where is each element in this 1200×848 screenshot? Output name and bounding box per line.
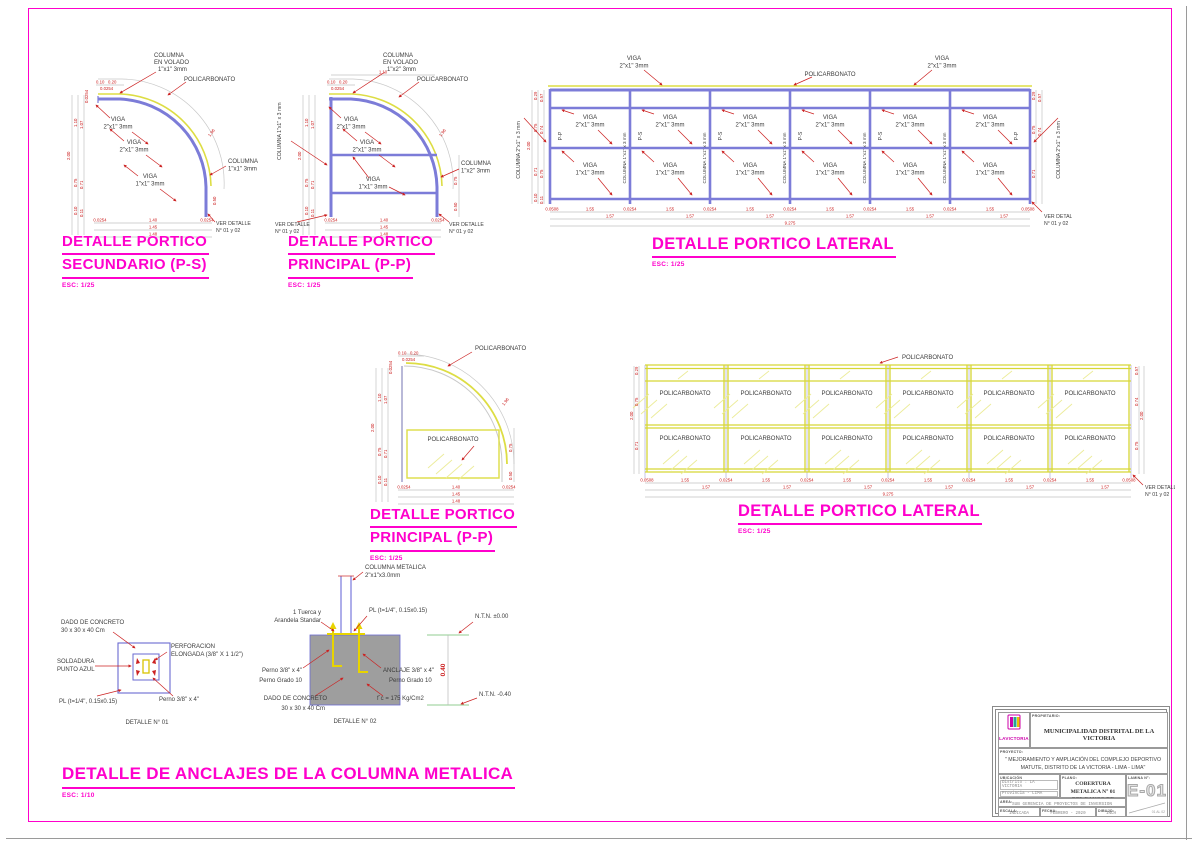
svg-text:2"x1" 3mm: 2"x1" 3mm: [104, 125, 133, 131]
svg-text:1"x2" 3mm: 1"x2" 3mm: [387, 67, 416, 73]
svg-text:VIGA: VIGA: [143, 174, 157, 180]
structure: [548, 86, 1032, 204]
svg-text:0.29: 0.29: [533, 91, 538, 100]
svg-text:DETALLE N° 02: DETALLE N° 02: [334, 719, 378, 725]
svg-text:0.71: 0.71: [310, 180, 315, 189]
svg-text:VIGA: VIGA: [743, 115, 757, 121]
svg-text:1.55: 1.55: [986, 207, 995, 212]
svg-text:P-S: P-S: [798, 131, 804, 140]
svg-text:1.45: 1.45: [380, 225, 389, 230]
svg-text:2.00: 2.00: [526, 141, 531, 150]
svg-text:POLICARBONATO: POLICARBONATO: [821, 391, 872, 397]
plano-cell: PLANO: COBERTURA METALICA N° 01 DEL BANC…: [1060, 774, 1126, 798]
structure: [329, 94, 442, 217]
plano-label: PLANO:: [1062, 776, 1077, 780]
svg-text:1.57: 1.57: [846, 214, 855, 219]
svg-text:1.57: 1.57: [783, 485, 792, 490]
proyecto-line1: " MEJORAMIENTO Y AMPLIACIÓN DEL COMPLEJO…: [999, 757, 1167, 765]
svg-text:1.55: 1.55: [666, 207, 675, 212]
svg-text:1"x2" 3mm: 1"x2" 3mm: [461, 169, 490, 175]
svg-text:0.20: 0.20: [410, 351, 419, 356]
svg-text:2"x1"x3.0mm: 2"x1"x3.0mm: [365, 573, 400, 579]
svg-text:POLICARBONATO: POLICARBONATO: [659, 391, 710, 397]
svg-text:0.10: 0.10: [377, 475, 382, 484]
svg-text:N° 01 y 02: N° 01 y 02: [449, 229, 473, 235]
detail-labels: VIGA 2"x1" 3mm VIGA 2"x1" 3mm POLICARBON…: [516, 56, 1072, 227]
svg-text:POLICARBONATO: POLICARBONATO: [821, 436, 872, 442]
svg-text:EN VOLADO: EN VOLADO: [383, 60, 418, 66]
propietario-cell: PROPIETARIO: MUNICIPALIDAD DISTRITAL DE …: [1030, 712, 1168, 748]
propietario-value: MUNICIPALIDAD DISTRITAL DE LA VICTORIA: [1031, 728, 1167, 742]
escala-label: ESCALA:: [1000, 809, 1017, 813]
proyecto-label: PROYECTO:: [1000, 750, 1023, 754]
svg-text:0.10: 0.10: [73, 206, 78, 215]
svg-text:Perno Grado 10: Perno Grado 10: [259, 678, 302, 684]
logo-cell: LAVICTORIA: [998, 712, 1030, 748]
ubicacion-label: UBICACIÓN: [1000, 776, 1022, 780]
svg-text:0.0254: 0.0254: [331, 86, 345, 91]
svg-text:2.00: 2.00: [1139, 411, 1144, 420]
leader-arrows: [448, 352, 474, 460]
svg-text:0.75: 0.75: [533, 123, 538, 132]
svg-text:1.55: 1.55: [681, 478, 690, 483]
svg-text:0.0254: 0.0254: [943, 207, 957, 212]
structure: [98, 94, 211, 217]
svg-text:0.75: 0.75: [539, 169, 544, 178]
svg-text:1.40: 1.40: [452, 485, 461, 490]
svg-text:VIGA: VIGA: [344, 117, 358, 123]
svg-text:VIGA: VIGA: [663, 115, 677, 121]
svg-text:1"x1" 3mm: 1"x1" 3mm: [228, 167, 257, 173]
svg-text:VIGA: VIGA: [663, 163, 677, 169]
svg-text:2.00: 2.00: [297, 151, 302, 160]
svg-text:1.55: 1.55: [762, 478, 771, 483]
dibujo-cell: DIBUJO: INCH: [1096, 807, 1126, 817]
lamina-number: E-01: [1127, 781, 1167, 801]
svg-text:0.50: 0.50: [453, 202, 458, 211]
drawing-portico-principal-top: COLUMNA EN VOLADO 1"x2" 3mm POLICARBONAT…: [273, 45, 528, 245]
svg-text:VIGA: VIGA: [366, 177, 380, 183]
svg-text:f´c = 175 Kg/Cm2: f´c = 175 Kg/Cm2: [377, 696, 425, 702]
svg-text:2"x1" 3mm: 2"x1" 3mm: [576, 123, 605, 129]
detail-labels: POLICARBONATO POLICARBONATO POLICARBONAT…: [659, 355, 1175, 498]
svg-text:1.40: 1.40: [149, 218, 158, 223]
svg-text:COLUMNA 2"x1" x 3 mm: COLUMNA 2"x1" x 3 mm: [1056, 121, 1062, 179]
svg-text:VIGA: VIGA: [983, 163, 997, 169]
svg-text:1.57: 1.57: [702, 485, 711, 490]
svg-text:POLICARBONATO: POLICARBONATO: [1064, 436, 1115, 442]
svg-text:VIGA: VIGA: [627, 56, 641, 62]
svg-text:1"x1" 3mm: 1"x1" 3mm: [736, 171, 765, 177]
svg-text:1.57: 1.57: [926, 214, 935, 219]
svg-text:POLICARBONATO: POLICARBONATO: [659, 436, 710, 442]
svg-text:EN VOLADO: EN VOLADO: [154, 60, 189, 66]
title-portico-principal-mid: DETALLE PORTICO PRINCIPAL (P-P) ESC: 1/2…: [370, 505, 517, 563]
svg-text:COLUMNA 1"x1" x 3 mm: COLUMNA 1"x1" x 3 mm: [702, 132, 707, 183]
svg-text:N° 01 y 02: N° 01 y 02: [1145, 492, 1169, 498]
svg-text:1"x1" 3mm: 1"x1" 3mm: [656, 171, 685, 177]
svg-text:N° 01 y 02: N° 01 y 02: [216, 228, 240, 234]
svg-text:VER DETALLE: VER DETALLE: [1145, 485, 1175, 491]
proyecto-line2: MATUTE, DISTRITO DE LA VICTORIA - LIMA -…: [999, 765, 1167, 773]
svg-text:0.50: 0.50: [508, 471, 513, 480]
svg-text:1"x1" 3mm: 1"x1" 3mm: [976, 171, 1005, 177]
svg-text:VIGA: VIGA: [127, 140, 141, 146]
svg-text:1"x1" 3mm: 1"x1" 3mm: [136, 182, 165, 188]
paper-edge-bottom: [6, 838, 1192, 839]
svg-text:1"x1" 3mm: 1"x1" 3mm: [816, 171, 845, 177]
svg-text:1.07: 1.07: [79, 120, 84, 129]
svg-text:N.T.N. ±0.00: N.T.N. ±0.00: [475, 614, 509, 620]
fecha-label: FECHA:: [1042, 809, 1057, 813]
svg-text:9.275: 9.275: [785, 221, 796, 226]
title-portico-principal-top: DETALLE PORTICO PRINCIPAL (P-P) ESC: 1/2…: [288, 232, 435, 290]
svg-text:0.57: 0.57: [1037, 93, 1042, 102]
svg-text:COLUMNA 1"x1" x 3 mm: COLUMNA 1"x1" x 3 mm: [277, 102, 283, 160]
svg-text:VIGA: VIGA: [743, 163, 757, 169]
svg-text:1.96: 1.96: [438, 127, 447, 137]
svg-text:2"x1" 3mm: 2"x1" 3mm: [120, 148, 149, 154]
svg-text:Perno 3/8" x 4": Perno 3/8" x 4": [262, 668, 302, 674]
svg-text:P-P: P-P: [558, 131, 564, 140]
svg-text:0.11: 0.11: [310, 208, 315, 217]
detail-labels: COLUMNA EN VOLADO 1"x1" 3mm POLICARBONAT…: [104, 53, 258, 234]
svg-text:0.0254: 0.0254: [200, 218, 214, 223]
svg-text:0.74: 0.74: [539, 125, 544, 134]
svg-text:0.0254: 0.0254: [324, 218, 338, 223]
svg-text:1 Tuerca y: 1 Tuerca y: [293, 610, 321, 616]
svg-text:2"x1" 3mm: 2"x1" 3mm: [976, 123, 1005, 129]
svg-text:0.10: 0.10: [96, 80, 105, 85]
svg-text:1"x1" 3mm: 1"x1" 3mm: [158, 67, 187, 73]
svg-text:0.75: 0.75: [634, 397, 639, 406]
svg-text:1.57: 1.57: [766, 214, 775, 219]
svg-text:0.0254: 0.0254: [881, 478, 895, 483]
svg-text:2"x1" 3mm: 2"x1" 3mm: [736, 123, 765, 129]
svg-text:0.0254: 0.0254: [93, 218, 107, 223]
svg-text:VER DETALLE: VER DETALLE: [449, 222, 484, 228]
svg-text:0.0254: 0.0254: [800, 478, 814, 483]
ubicacion-distrito: Distrito : LA VICTORIA: [1000, 780, 1058, 790]
plano-line1: COBERTURA METALICA N° 01: [1061, 781, 1125, 797]
svg-text:0.0254: 0.0254: [783, 207, 797, 212]
svg-text:1.57: 1.57: [1101, 485, 1110, 490]
svg-text:POLICARBONATO: POLICARBONATO: [983, 391, 1034, 397]
svg-text:0.29: 0.29: [634, 366, 639, 375]
svg-text:0.75: 0.75: [1134, 441, 1139, 450]
svg-text:0.10: 0.10: [398, 351, 407, 356]
svg-text:1.48: 1.48: [452, 499, 461, 504]
svg-text:2"x1" 3mm: 2"x1" 3mm: [928, 64, 957, 70]
svg-text:0.75: 0.75: [377, 447, 382, 456]
area-cell: AREA: SUB GERENCIA DE PROYECTOS DE INVER…: [998, 798, 1126, 807]
svg-text:DADO DE CONCRETO: DADO DE CONCRETO: [264, 696, 328, 702]
svg-text:0.57: 0.57: [539, 93, 544, 102]
svg-text:0.71: 0.71: [383, 449, 388, 458]
svg-text:VIGA: VIGA: [903, 115, 917, 121]
svg-text:1.45: 1.45: [149, 225, 158, 230]
svg-text:0.11: 0.11: [539, 195, 544, 204]
svg-text:VIGA: VIGA: [823, 115, 837, 121]
svg-text:0.0254: 0.0254: [402, 357, 416, 362]
svg-text:0.0254: 0.0254: [388, 360, 393, 374]
svg-text:0.0508: 0.0508: [640, 478, 654, 483]
paper-edge-right: [1186, 6, 1187, 840]
svg-text:Perno 3/8" x 4": Perno 3/8" x 4": [159, 697, 199, 703]
svg-text:POLICARBONATO: POLICARBONATO: [475, 346, 526, 352]
dimension-lines: [376, 354, 514, 504]
lamina-label: LAMINA N°:: [1128, 776, 1150, 780]
svg-text:PERFORACION: PERFORACION: [171, 644, 215, 650]
svg-text:Arandela Standar: Arandela Standar: [274, 618, 321, 624]
detail-labels: DADO DE CONCRETO 30 x 30 x 40 Cm PERFORA…: [57, 620, 243, 726]
escala-cell: ESCALA: INDICADA: [998, 807, 1040, 817]
svg-text:POLICARBONATO: POLICARBONATO: [804, 72, 855, 78]
svg-text:PL (t=1/4", 0.15x0.15): PL (t=1/4", 0.15x0.15): [59, 699, 117, 705]
svg-text:0.75: 0.75: [1031, 125, 1036, 134]
svg-text:2"x1" 3mm: 2"x1" 3mm: [353, 148, 382, 154]
svg-text:VIGA: VIGA: [935, 56, 949, 62]
svg-text:0.0254: 0.0254: [623, 207, 637, 212]
drawing-portico-secundario: COLUMNA EN VOLADO 1"x1" 3mm POLICARBONAT…: [58, 45, 293, 245]
structure: [402, 363, 507, 482]
svg-text:0.29: 0.29: [1031, 91, 1036, 100]
svg-text:30 x 30 x 40 Cm: 30 x 30 x 40 Cm: [281, 706, 325, 712]
svg-text:P-S: P-S: [638, 131, 644, 140]
svg-text:1.57: 1.57: [864, 485, 873, 490]
svg-text:COLUMNA 1"x1" x 3 mm: COLUMNA 1"x1" x 3 mm: [942, 132, 947, 183]
propietario-label: PROPIETARIO:: [1032, 714, 1060, 718]
svg-text:1.10: 1.10: [377, 393, 382, 402]
title-anclajes: DETALLE DE ANCLAJES DE LA COLUMNA METALI…: [62, 763, 515, 801]
logo-text: LAVICTORIA: [999, 736, 1029, 741]
svg-text:0.57: 0.57: [1134, 366, 1139, 375]
svg-text:2.00: 2.00: [370, 423, 375, 432]
svg-text:0.0254: 0.0254: [703, 207, 717, 212]
scale-note: ESC: 1/25: [652, 261, 896, 270]
svg-text:1.45: 1.45: [452, 492, 461, 497]
svg-text:2"x1" 3mm: 2"x1" 3mm: [896, 123, 925, 129]
svg-text:COLUMNA 2"x1" x 3 mm: COLUMNA 2"x1" x 3 mm: [516, 121, 522, 179]
svg-text:POLICARBONATO: POLICARBONATO: [184, 77, 235, 83]
svg-text:COLUMNA: COLUMNA: [461, 161, 491, 167]
svg-text:VIGA: VIGA: [360, 140, 374, 146]
svg-text:1.57: 1.57: [1000, 214, 1009, 219]
svg-text:VER DETALLE: VER DETALLE: [216, 221, 251, 227]
svg-text:0.11: 0.11: [79, 208, 84, 217]
svg-text:1"x1" 3mm: 1"x1" 3mm: [359, 185, 388, 191]
svg-text:VIGA: VIGA: [583, 115, 597, 121]
svg-text:1.10: 1.10: [304, 118, 309, 127]
svg-text:PUNTO AZUL: PUNTO AZUL: [57, 667, 95, 673]
svg-text:COLUMNA: COLUMNA: [154, 53, 184, 59]
svg-text:0.0254: 0.0254: [431, 218, 445, 223]
svg-text:0.0254: 0.0254: [962, 478, 976, 483]
svg-text:POLICARBONATO: POLICARBONATO: [902, 355, 953, 361]
svg-text:2"x1" 3mm: 2"x1" 3mm: [620, 64, 649, 70]
svg-text:VER DETALLE: VER DETALLE: [1044, 214, 1072, 220]
svg-text:COLUMNA METALICA: COLUMNA METALICA: [365, 565, 426, 571]
ubicacion-cell: UBICACIÓN Distrito : LA VICTORIA Provinc…: [998, 774, 1060, 798]
svg-text:0.0508: 0.0508: [1021, 207, 1035, 212]
svg-text:1.55: 1.55: [1005, 478, 1014, 483]
svg-text:DETALLE N° 01: DETALLE N° 01: [126, 720, 170, 726]
drawing-portico-lateral-mid: POLICARBONATO POLICARBONATO POLICARBONAT…: [630, 350, 1175, 500]
svg-text:0.0254: 0.0254: [397, 485, 411, 490]
svg-text:1.07: 1.07: [383, 395, 388, 404]
svg-text:1.96: 1.96: [501, 396, 510, 406]
svg-text:1.96: 1.96: [207, 127, 216, 137]
svg-text:0.74: 0.74: [1037, 127, 1042, 136]
fecha-cell: FECHA: FEBRERO - 2020: [1040, 807, 1096, 817]
svg-text:0.71: 0.71: [634, 441, 639, 450]
svg-text:Perno Grado 10: Perno Grado 10: [389, 678, 432, 684]
svg-text:POLICARBONATO: POLICARBONATO: [740, 391, 791, 397]
svg-text:ELONGADA (3/8" X 1 1/2"): ELONGADA (3/8" X 1 1/2"): [171, 652, 243, 658]
svg-text:1.10: 1.10: [379, 70, 388, 75]
svg-text:0.74: 0.74: [1134, 397, 1139, 406]
svg-text:1.55: 1.55: [924, 478, 933, 483]
svg-text:2"x1" 3mm: 2"x1" 3mm: [337, 125, 366, 131]
svg-text:POLICARBONATO: POLICARBONATO: [983, 436, 1034, 442]
svg-text:POLICARBONATO: POLICARBONATO: [417, 77, 468, 83]
svg-text:COLUMNA 1"x1" x 3 mm: COLUMNA 1"x1" x 3 mm: [782, 132, 787, 183]
leader-arrows: [95, 632, 173, 696]
svg-text:2.00: 2.00: [66, 151, 71, 160]
la-victoria-logo-icon: [999, 714, 1029, 736]
svg-text:1.57: 1.57: [945, 485, 954, 490]
svg-text:VIGA: VIGA: [583, 163, 597, 169]
drawing-sheet: COLUMNA EN VOLADO 1"x1" 3mm POLICARBONAT…: [0, 0, 1200, 848]
svg-text:COLUMNA 1"x1" x 3 mm: COLUMNA 1"x1" x 3 mm: [622, 132, 627, 183]
svg-text:1.40: 1.40: [380, 218, 389, 223]
scale-note: ESC: 1/25: [738, 528, 982, 537]
svg-text:VIGA: VIGA: [983, 115, 997, 121]
drawing-detalle-02: COLUMNA METALICA 2"x1"x3.0mm 1 Tuerca y …: [255, 558, 550, 738]
structure: [118, 643, 170, 693]
svg-text:PL (t=1/4", 0.15x0.15): PL (t=1/4", 0.15x0.15): [369, 608, 427, 614]
title-block: LAVICTORIA PROPIETARIO: MUNICIPALIDAD DI…: [992, 706, 1170, 817]
svg-text:0.71: 0.71: [533, 167, 538, 176]
svg-text:N.T.N. -0.40: N.T.N. -0.40: [479, 692, 512, 698]
svg-text:2"x1" 3mm: 2"x1" 3mm: [816, 123, 845, 129]
svg-text:2.00: 2.00: [630, 411, 634, 420]
svg-text:0.10: 0.10: [304, 206, 309, 215]
svg-text:P-S: P-S: [878, 131, 884, 140]
svg-text:9.275: 9.275: [883, 492, 894, 497]
svg-text:0.0254: 0.0254: [100, 86, 114, 91]
svg-text:0.71: 0.71: [79, 180, 84, 189]
svg-text:1.57: 1.57: [1026, 485, 1035, 490]
svg-text:30 x 30 x 40 Cm: 30 x 30 x 40 Cm: [61, 628, 105, 634]
svg-text:1.55: 1.55: [906, 207, 915, 212]
svg-text:1.10: 1.10: [73, 118, 78, 127]
svg-text:0.0254: 0.0254: [719, 478, 733, 483]
svg-text:POLICARBONATO: POLICARBONATO: [902, 436, 953, 442]
svg-text:1.55: 1.55: [586, 207, 595, 212]
dibujo-label: DIBUJO:: [1098, 809, 1114, 813]
svg-text:0.50: 0.50: [212, 196, 217, 205]
svg-text:0.10: 0.10: [327, 80, 336, 85]
svg-text:0.0254: 0.0254: [502, 485, 516, 490]
svg-text:VIGA: VIGA: [111, 117, 125, 123]
svg-text:1"x1" 3mm: 1"x1" 3mm: [576, 171, 605, 177]
svg-text:0.20: 0.20: [108, 80, 117, 85]
svg-text:VIGA: VIGA: [903, 163, 917, 169]
area-value: SUB GERENCIA DE PROYECTOS DE INVERSION: [999, 802, 1125, 807]
svg-text:P-S: P-S: [718, 131, 724, 140]
proyecto-cell: PROYECTO: " MEJORAMIENTO Y AMPLIACIÓN DE…: [998, 748, 1168, 774]
svg-text:SOLDADURA: SOLDADURA: [57, 659, 94, 665]
svg-text:VER DETALLE: VER DETALLE: [275, 222, 310, 228]
scale-note: ESC: 1/25: [62, 282, 209, 291]
title-portico-secundario: DETALLE PORTICO SECUNDARIO (P-S) ESC: 1/…: [62, 232, 209, 290]
ubicacion-provincia: Provincia - LIMA: [1000, 791, 1058, 797]
drawing-portico-principal-mid: POLICARBONATO POLICARBONATO 2.00 1.10 1.…: [362, 340, 547, 512]
svg-text:POLICARBONATO: POLICARBONATO: [902, 391, 953, 397]
lamina-cell: LAMINA N°: E-01 01 AL 02: [1126, 774, 1168, 817]
structure: [310, 576, 469, 705]
svg-text:0.40: 0.40: [440, 663, 447, 676]
svg-text:1.55: 1.55: [826, 207, 835, 212]
svg-text:2"x1" 3mm: 2"x1" 3mm: [656, 123, 685, 129]
svg-text:COLUMNA: COLUMNA: [228, 159, 258, 165]
area-label: AREA:: [1000, 800, 1012, 804]
svg-text:VIGA: VIGA: [823, 163, 837, 169]
scale-note: ESC: 1/10: [62, 792, 515, 801]
svg-text:1.57: 1.57: [686, 214, 695, 219]
svg-text:ANCLAJE 3/8" x 4": ANCLAJE 3/8" x 4": [383, 668, 434, 674]
structure: [633, 365, 1131, 478]
svg-text:0.75: 0.75: [453, 176, 458, 185]
svg-text:POLICARBONATO: POLICARBONATO: [1064, 391, 1115, 397]
svg-text:COLUMNA: COLUMNA: [383, 53, 413, 59]
svg-text:0.0508: 0.0508: [545, 207, 559, 212]
svg-text:N° 01 y 02: N° 01 y 02: [1044, 221, 1068, 227]
svg-text:DADO DE CONCRETO: DADO DE CONCRETO: [61, 620, 125, 626]
svg-text:0.0508: 0.0508: [1122, 478, 1136, 483]
scale-note: ESC: 1/25: [288, 282, 435, 291]
svg-text:1.55: 1.55: [1086, 478, 1095, 483]
svg-text:POLICARBONATO: POLICARBONATO: [740, 436, 791, 442]
svg-text:0.75: 0.75: [304, 178, 309, 187]
svg-text:1.55: 1.55: [746, 207, 755, 212]
drawing-portico-lateral-top: VIGA 2"x1" 3mm VIGA 2"x1" 3mm POLICARBON…: [512, 50, 1072, 240]
svg-text:COLUMNA 1"x1" x 3 mm: COLUMNA 1"x1" x 3 mm: [862, 132, 867, 183]
title-portico-lateral-top: DETALLE PORTICO LATERAL ESC: 1/25: [652, 233, 896, 270]
svg-text:1.55: 1.55: [843, 478, 852, 483]
svg-text:0.20: 0.20: [339, 80, 348, 85]
dimension-labels: 2.00 0.29 0.75 0.71 0.57 0.74 0.75 2.00 …: [630, 366, 1144, 496]
svg-text:0.0254: 0.0254: [1043, 478, 1057, 483]
title-portico-lateral-mid: DETALLE PORTICO LATERAL ESC: 1/25: [738, 500, 982, 537]
svg-text:POLICARBONATO: POLICARBONATO: [427, 437, 478, 443]
svg-text:P-P: P-P: [1014, 131, 1020, 140]
svg-text:0.10: 0.10: [533, 193, 538, 202]
svg-text:0.71: 0.71: [1031, 169, 1036, 178]
svg-text:1.57: 1.57: [606, 214, 615, 219]
svg-text:1.07: 1.07: [310, 120, 315, 129]
svg-text:0.75: 0.75: [508, 443, 513, 452]
svg-text:1"x1" 3mm: 1"x1" 3mm: [896, 171, 925, 177]
svg-text:0.11: 0.11: [383, 477, 388, 486]
svg-text:0.0254: 0.0254: [84, 89, 89, 103]
svg-text:0.75: 0.75: [73, 178, 78, 187]
svg-text:0.0254: 0.0254: [863, 207, 877, 212]
